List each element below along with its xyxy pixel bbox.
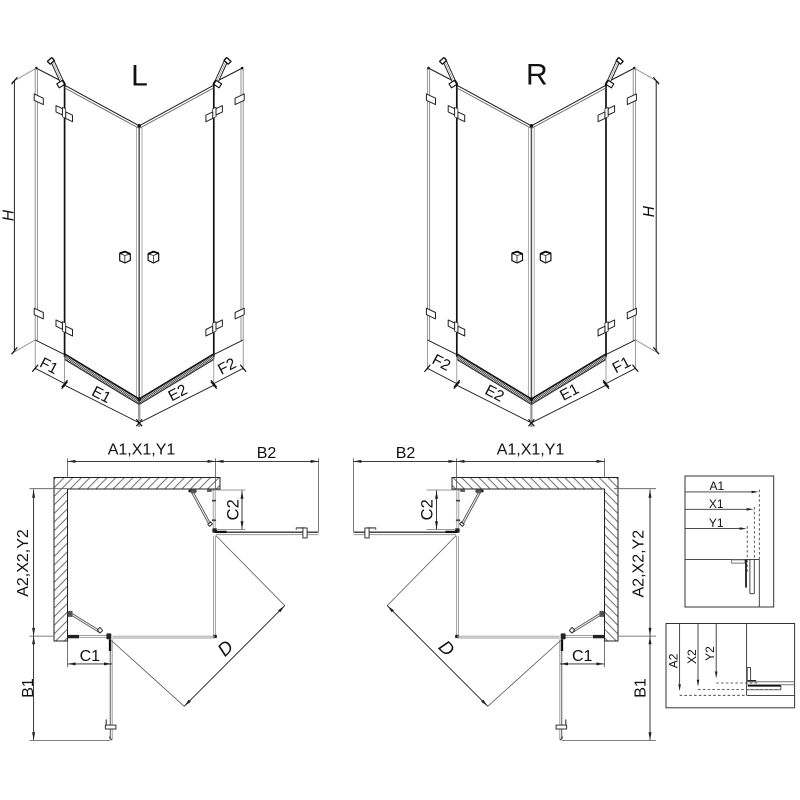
svg-text:B1: B1 [632,678,649,698]
svg-text:A2,X2,Y2: A2,X2,Y2 [630,530,647,598]
svg-text:A2,X2,Y2: A2,X2,Y2 [15,529,32,597]
svg-text:Y2: Y2 [703,646,717,661]
svg-text:B2: B2 [257,445,277,462]
svg-text:H: H [1,209,18,221]
svg-text:A1: A1 [710,479,725,493]
svg-text:C1: C1 [80,648,101,665]
svg-text:H: H [641,205,658,217]
svg-text:R: R [526,59,548,92]
svg-text:Y1: Y1 [709,516,724,530]
svg-text:B2: B2 [396,445,416,462]
svg-text:C2: C2 [224,499,242,520]
svg-text:L: L [131,59,148,92]
svg-text:B1: B1 [20,678,37,698]
svg-text:A1,X1,Y1: A1,X1,Y1 [108,441,176,458]
svg-text:C2: C2 [419,499,437,520]
svg-text:X2: X2 [685,649,699,664]
svg-text:C1: C1 [572,648,593,665]
svg-text:A2: A2 [667,653,681,668]
svg-text:A1,X1,Y1: A1,X1,Y1 [497,441,565,458]
